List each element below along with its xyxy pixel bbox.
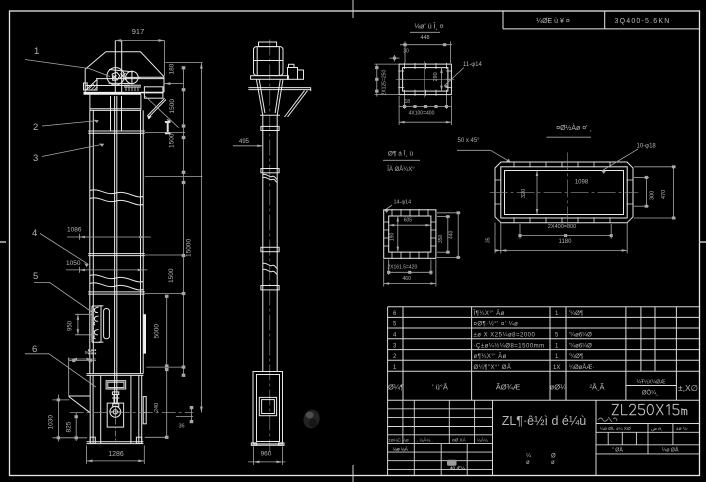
svg-text:440: 440 bbox=[449, 230, 455, 239]
svg-text:2: 2 bbox=[33, 122, 38, 133]
svg-text:±ø¼C ¼ø: ±ø¼C ¼ø bbox=[388, 438, 409, 443]
svg-text:'¼ø6¼Ø: '¼ø6¼Ø bbox=[569, 332, 592, 338]
svg-text:²Å¸Ã: ²Å¸Ã bbox=[590, 383, 605, 392]
svg-text:ĪÀ ØÅ¼X°: ĪÀ ØÅ¼X° bbox=[387, 166, 415, 173]
svg-text:' ü°Å: ' ü°Å bbox=[432, 383, 448, 392]
svg-text:Ø¶ á Ī¸ ü: Ø¶ á Ī¸ ü bbox=[388, 150, 414, 158]
svg-text:ø: ø bbox=[551, 460, 555, 466]
svg-text:·Ç±ø¼½¼Ø8=1500mm: ·Ç±ø¼½¼Ø8=1500mm bbox=[474, 342, 545, 349]
svg-text:495: 495 bbox=[239, 139, 250, 145]
svg-text:ض ø¸: ض ø¸ bbox=[651, 427, 663, 432]
svg-text:300: 300 bbox=[650, 191, 656, 200]
svg-text:36: 36 bbox=[179, 424, 185, 430]
svg-text:øØ XÃ: øØ XÃ bbox=[452, 437, 467, 443]
svg-text:825: 825 bbox=[66, 421, 73, 432]
svg-text:4X100=400: 4X100=400 bbox=[409, 111, 435, 117]
svg-text:ø¶¼X°' Āø: ø¶¼X°' Āø bbox=[474, 353, 507, 360]
svg-text:50 x 45°: 50 x 45° bbox=[458, 138, 481, 144]
svg-text:14-φ14: 14-φ14 bbox=[394, 200, 412, 206]
svg-text:605: 605 bbox=[404, 218, 413, 224]
svg-text:1X: 1X bbox=[553, 365, 560, 371]
svg-text:460: 460 bbox=[403, 276, 412, 282]
svg-text:ø: ø bbox=[526, 460, 530, 466]
svg-text:±ø ¼·: ±ø ¼· bbox=[676, 426, 689, 432]
svg-text:290: 290 bbox=[433, 72, 439, 81]
svg-text:¼ø ØL ±¼ XØ: ¼ø ØL ±¼ XØ bbox=[600, 426, 631, 432]
svg-text:ZL¶·ê½ì d é¼ù: ZL¶·ê½ì d é¼ù bbox=[502, 414, 587, 428]
svg-text:15000: 15000 bbox=[186, 239, 193, 257]
svg-text:240: 240 bbox=[154, 403, 160, 412]
svg-text:5000: 5000 bbox=[154, 324, 161, 339]
svg-text:'¼ø6¼Ø: '¼ø6¼Ø bbox=[569, 343, 592, 349]
svg-text:500: 500 bbox=[85, 350, 93, 356]
svg-text:¤Ø½Àø ¤' ¸: ¤Ø½Àø ¤' ¸ bbox=[556, 123, 592, 132]
svg-text:2X400=800: 2X400=800 bbox=[548, 224, 576, 230]
svg-text:'¼Ø¶: '¼Ø¶ bbox=[569, 311, 583, 317]
svg-text:¤Ø¶·½°' ¤' ¼ø: ¤Ø¶·½°' ¤' ¼ø bbox=[474, 321, 519, 328]
svg-text:1050: 1050 bbox=[66, 260, 81, 267]
svg-text:¼ØE ù ¥ ¤: ¼ØE ù ¥ ¤ bbox=[536, 18, 570, 25]
svg-text:Ī¶¼X°' Āø: Ī¶¼X°' Āø bbox=[474, 310, 505, 317]
svg-text:1286: 1286 bbox=[108, 451, 124, 458]
svg-text:3Q400-5.6KN: 3Q400-5.6KN bbox=[614, 18, 670, 25]
svg-text:1086: 1086 bbox=[67, 227, 82, 234]
svg-text:øØ¼: øØ¼ bbox=[550, 383, 567, 392]
svg-text:10-φ18: 10-φ18 bbox=[637, 144, 657, 150]
svg-text:1500: 1500 bbox=[169, 133, 176, 148]
svg-text:6: 6 bbox=[32, 344, 37, 355]
svg-text:470: 470 bbox=[661, 190, 667, 199]
svg-text:¼ø ¼Ã: ¼ø ¼Ã bbox=[393, 446, 409, 452]
svg-text:¼Ŧ½X¼ØÆ: ¼Ŧ½X¼ØÆ bbox=[637, 379, 666, 386]
svg-text:30: 30 bbox=[403, 49, 409, 55]
svg-text:Ø¼¶"X°' ØÅ: Ø¼¶"X°' ØÅ bbox=[474, 364, 512, 371]
svg-text:1030: 1030 bbox=[48, 415, 55, 430]
svg-text:4: 4 bbox=[32, 228, 37, 239]
svg-text:917: 917 bbox=[132, 27, 145, 36]
svg-text:1500: 1500 bbox=[168, 268, 175, 283]
svg-text:1: 1 bbox=[34, 46, 39, 57]
svg-text:±,X∅: ±,X∅ bbox=[678, 383, 699, 393]
svg-text:ÃØ¾Æ: ÃØ¾Æ bbox=[496, 383, 521, 392]
svg-text:Ø: Ø bbox=[551, 454, 556, 460]
svg-text:40 Æ¼: 40 Æ¼ bbox=[450, 465, 465, 470]
svg-text:960: 960 bbox=[261, 451, 272, 458]
svg-text:1180: 1180 bbox=[559, 239, 573, 245]
svg-text:¼ø ØÅ: ¼ø ØÅ bbox=[662, 447, 679, 454]
svg-text:⅛ø' ü Ī¸ ¤: ⅛ø' ü Ī¸ ¤ bbox=[414, 23, 443, 31]
svg-text:180: 180 bbox=[169, 63, 176, 74]
svg-text:448: 448 bbox=[420, 35, 429, 41]
svg-text:35: 35 bbox=[486, 237, 492, 243]
svg-text:ØÖ¼¸: ØÖ¼¸ bbox=[642, 390, 658, 397]
svg-text:190: 190 bbox=[390, 232, 396, 241]
svg-text:18: 18 bbox=[405, 99, 411, 105]
svg-text:11-φ14: 11-φ14 bbox=[463, 62, 482, 68]
svg-text:350: 350 bbox=[438, 234, 444, 243]
svg-text:, ¼Ã¼ .: , ¼Ã¼ . bbox=[417, 437, 433, 443]
svg-text:Ø¼¶: Ø¼¶ bbox=[388, 383, 404, 392]
svg-text:1098: 1098 bbox=[575, 180, 589, 186]
svg-text:¼Ã¼: ¼Ã¼ bbox=[477, 437, 488, 443]
svg-text:" ØÅ: " ØÅ bbox=[612, 447, 623, 454]
svg-text:2X161.5=420: 2X161.5=420 bbox=[387, 265, 417, 271]
svg-text:5: 5 bbox=[33, 271, 38, 282]
svg-text:'¼Ø¶: '¼Ø¶ bbox=[569, 354, 583, 360]
svg-text:320: 320 bbox=[521, 189, 527, 198]
svg-text:2X125=250: 2X125=250 bbox=[382, 70, 388, 96]
svg-text:950: 950 bbox=[68, 320, 74, 331]
svg-text:¼ØøÅÆ·: ¼ØøÅÆ· bbox=[569, 364, 594, 371]
svg-text:±ø X X25¼ø8=2000: ±ø X X25¼ø8=2000 bbox=[474, 332, 536, 338]
svg-text:1500: 1500 bbox=[169, 99, 176, 114]
svg-text:3: 3 bbox=[33, 153, 38, 164]
